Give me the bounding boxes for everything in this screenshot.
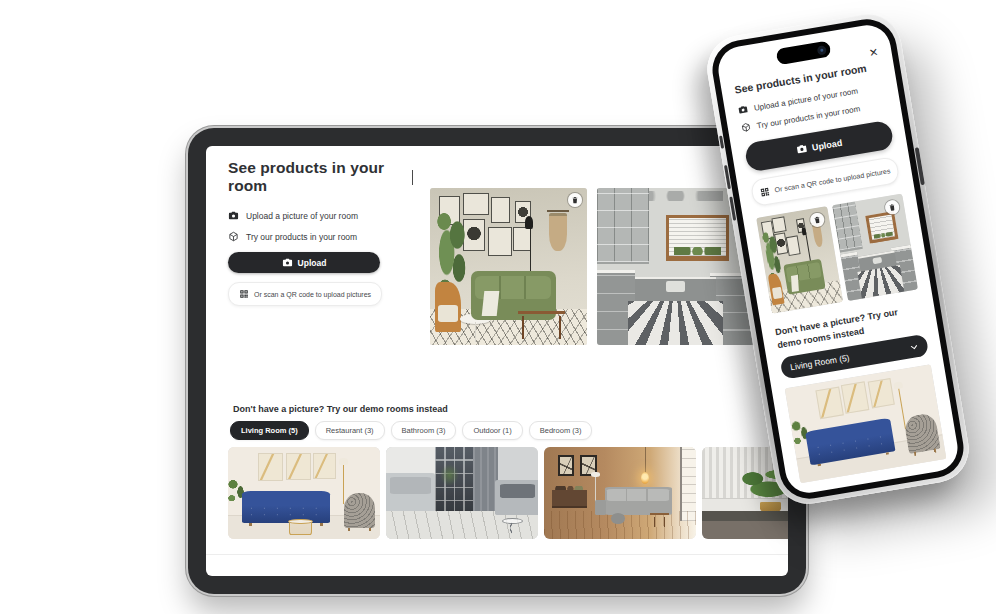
qr-code-icon [759, 186, 771, 198]
tab-living-room[interactable]: Living Room (5) [230, 421, 309, 440]
qr-code-button[interactable]: Or scan a QR code to upload pictures [228, 282, 382, 306]
qr-code-icon [239, 289, 249, 299]
coffee-table [650, 513, 668, 527]
uploaded-room-image-kitchen[interactable] [832, 194, 919, 301]
page-title: See products in your room [228, 159, 413, 195]
wall-art [815, 387, 844, 419]
uploaded-images-row [430, 188, 754, 345]
macrame-hanging [549, 213, 566, 251]
upload-panel: See products in your room Upload a pictu… [228, 159, 413, 306]
cube-icon [228, 231, 239, 242]
side-table [502, 518, 522, 535]
striped-floor [857, 265, 904, 299]
uploaded-room-image-living-room[interactable] [430, 188, 587, 345]
blue-sofa [242, 491, 330, 523]
step-try-products: Try our products in your room [228, 231, 413, 242]
gray-sectional-sofa [605, 487, 672, 515]
camera-icon [795, 143, 808, 156]
step-upload-picture: Upload a picture of your room [228, 210, 413, 221]
armchair [435, 282, 462, 332]
dropdown-selected-label: Living Room (5) [789, 353, 850, 373]
wall-frame [488, 227, 512, 256]
camera-icon [737, 104, 749, 116]
pendant-bulb [641, 447, 649, 486]
tab-bathroom[interactable]: Bathroom (3) [391, 421, 457, 440]
page-title-text: See products in your room [228, 159, 410, 195]
divider [206, 554, 788, 555]
tablet-device: See products in your room Upload a pictu… [188, 128, 806, 594]
trash-icon [571, 196, 579, 204]
chevron-down-icon [909, 342, 919, 352]
demo-images-row [228, 447, 788, 539]
uploaded-room-image-living-room[interactable] [756, 206, 843, 313]
demo-room-blue-sofa[interactable] [228, 447, 380, 539]
page-background: See products in your room Upload a pictu… [0, 0, 996, 614]
wall-art [313, 453, 336, 479]
uploaded-images-row [756, 194, 918, 314]
demo-room-tabs: Living Room (5) Restaurant (3) Bathroom … [230, 421, 592, 440]
qr-button-label: Or scan a QR code to upload pictures [254, 291, 371, 298]
pouf [611, 513, 625, 524]
camera-icon [282, 257, 293, 268]
dynamic-island [776, 41, 832, 66]
demo-room-blue-sofa[interactable] [785, 364, 947, 483]
qr-button-label: Or scan a QR code to upload pictures [774, 167, 891, 193]
demo-room-gray-loft[interactable] [386, 447, 538, 539]
tab-bedroom[interactable]: Bedroom (3) [529, 421, 593, 440]
text-cursor [412, 170, 413, 185]
camera-icon [228, 210, 239, 221]
gray-sofa [495, 480, 538, 515]
wall-art [258, 453, 283, 481]
patterned-armchair [344, 493, 376, 528]
kitchen-window [666, 215, 729, 259]
wall-frame [491, 197, 510, 223]
delete-image-button[interactable] [568, 193, 582, 207]
wall-art [558, 455, 575, 475]
wall-art [841, 381, 870, 413]
upload-button-label: Upload [298, 258, 327, 268]
step-label: Try our products in your room [246, 232, 357, 242]
wall-art [868, 378, 895, 408]
upload-button[interactable]: Upload [228, 252, 380, 273]
trash-icon [812, 215, 821, 224]
upper-cabinets [597, 188, 649, 264]
floor [702, 521, 788, 539]
dark-table [702, 511, 788, 520]
wall-art [286, 453, 311, 481]
demo-room-warm-sectional[interactable] [544, 447, 696, 539]
step-label: Upload a picture of your room [246, 211, 358, 221]
tab-outdoor[interactable]: Outdoor (1) [462, 421, 522, 440]
front-camera [817, 45, 827, 55]
tablet-screen: See products in your room Upload a pictu… [206, 146, 788, 576]
gold-side-table [289, 520, 312, 536]
trash-icon [888, 203, 897, 212]
sideboard [552, 490, 587, 508]
cube-icon [740, 122, 752, 134]
glass-partition [435, 447, 473, 515]
steps-list: Upload a picture of your room Try our pr… [228, 210, 413, 242]
window [680, 447, 696, 521]
tab-restaurant[interactable]: Restaurant (3) [315, 421, 385, 440]
demo-rooms-heading: Don't have a picture? Try our demo rooms… [233, 404, 448, 414]
close-icon[interactable]: ✕ [868, 47, 879, 59]
upload-button-label: Upload [811, 137, 843, 152]
camera-lens-dot [820, 48, 823, 51]
coffee-table [518, 311, 565, 339]
kitchen-window [865, 212, 898, 244]
gray-sofa [386, 473, 435, 512]
striped-floor [628, 301, 722, 345]
